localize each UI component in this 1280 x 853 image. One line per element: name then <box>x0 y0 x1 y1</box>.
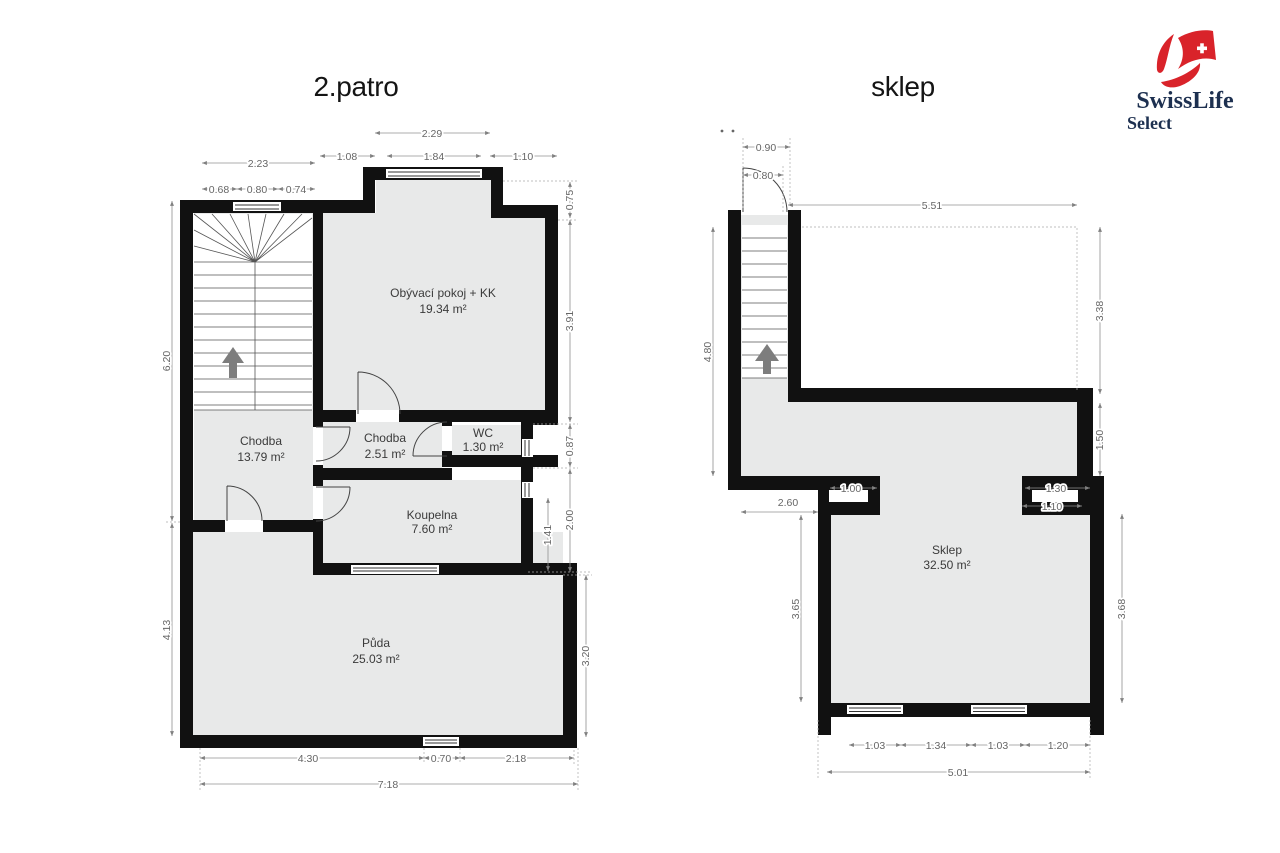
room-name: Chodba <box>240 434 282 448</box>
upper-floor-outline <box>802 227 1077 390</box>
room-area: 32.50 m² <box>923 558 970 572</box>
dim-label: 2.23 <box>248 158 269 170</box>
room-area: 1.30 m² <box>463 440 504 454</box>
dim-label: 0.70 <box>431 753 452 765</box>
plan-sklep: sklep Sklep 32.50 m² <box>702 71 1128 779</box>
dim-label: 1.34 <box>926 740 947 752</box>
floorplan-canvas: 2.patro Obývací pokoj + K <box>0 0 1280 853</box>
dim-label: 0.87 <box>564 436 576 457</box>
logo-brand-text: SwissLife <box>1136 88 1234 114</box>
dim-label: 3.65 <box>790 599 802 620</box>
room-name: Obývací pokoj + KK <box>390 286 496 300</box>
dim-label: 0.80 <box>753 170 774 182</box>
swisslife-logo: SwissLife Select <box>1127 30 1234 133</box>
dim-label: 0.74 <box>286 184 307 196</box>
dim-label: 2.29 <box>422 128 443 140</box>
stair-area <box>194 214 312 410</box>
dim-label: 3.38 <box>1094 301 1106 322</box>
plan-title-right: sklep <box>871 71 935 102</box>
dim-label: 1.30 <box>1046 483 1067 495</box>
dim-label: 1.03 <box>988 740 1009 752</box>
dim-label: 1.08 <box>337 151 358 163</box>
dim-label: 1.50 <box>1094 430 1106 451</box>
dim-label: 1.10 <box>1042 501 1063 513</box>
dim-label: 1.20 <box>1048 740 1069 752</box>
room-area: 7.60 m² <box>412 522 453 536</box>
staircase <box>194 214 312 410</box>
plan-title-left: 2.patro <box>313 71 398 102</box>
floorplan-page: 2.patro Obývací pokoj + K <box>0 0 1280 853</box>
logo-sub-text: Select <box>1127 113 1172 133</box>
room-name: Koupelna <box>407 508 458 522</box>
staircase <box>742 225 787 378</box>
dim-label: 5.01 <box>948 767 969 779</box>
dim-label: 2.00 <box>564 510 576 531</box>
dim-label: 3.91 <box>564 311 576 332</box>
room-name: Půda <box>362 636 390 650</box>
room-area: 2.51 m² <box>365 447 406 461</box>
dim-label: 2.60 <box>778 497 799 509</box>
dim-label: 5.51 <box>922 200 943 212</box>
ref-dots <box>721 130 735 133</box>
room-name: WC <box>473 426 493 440</box>
room-area: 19.34 m² <box>419 302 466 316</box>
swisslife-flag-icon <box>1157 30 1216 87</box>
dim-label: 0.90 <box>756 142 777 154</box>
dim-label: 3.68 <box>1116 599 1128 620</box>
dim-label: 3.20 <box>580 646 592 667</box>
dim-label: 1.41 <box>542 525 554 546</box>
room-name: Chodba <box>364 431 406 445</box>
dim-label: 2.18 <box>506 753 527 765</box>
room-area: 13.79 m² <box>237 450 284 464</box>
dim-label: 6.20 <box>161 351 173 372</box>
room-area: 25.03 m² <box>352 652 399 666</box>
dim-label: 1.00 <box>841 483 862 495</box>
dim-label: 7.18 <box>378 779 399 791</box>
dim-label: 0.75 <box>564 190 576 211</box>
dim-label: 1.10 <box>513 151 534 163</box>
dim-label: 4.30 <box>298 753 319 765</box>
dim-label: 4.13 <box>161 620 173 641</box>
dim-label: 0.68 <box>209 184 230 196</box>
dim-label: 1.84 <box>424 151 445 163</box>
plan-2patro: 2.patro Obývací pokoj + K <box>161 71 592 791</box>
dim-label: 0.80 <box>247 184 268 196</box>
dim-label: 4.80 <box>702 342 714 363</box>
dim-label: 1.03 <box>865 740 886 752</box>
room-name: Sklep <box>932 543 962 557</box>
